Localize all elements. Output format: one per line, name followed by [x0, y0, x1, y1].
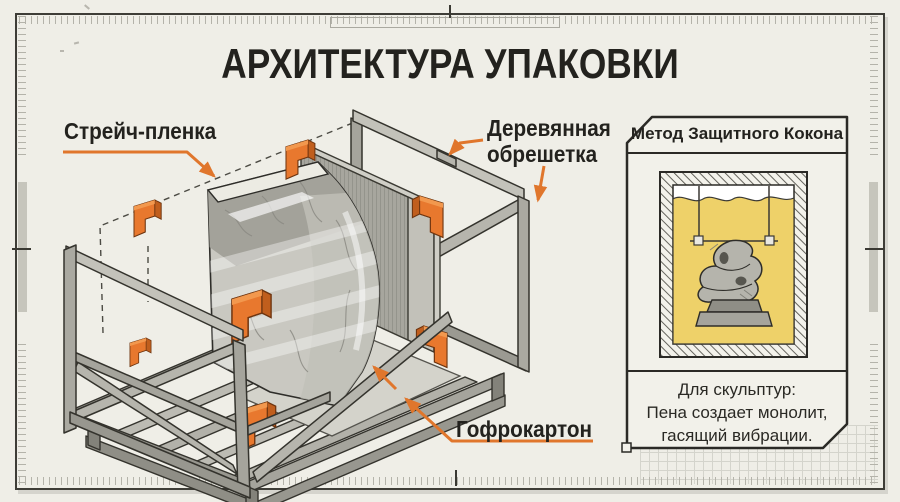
infographic-canvas: АРХИТЕКТУРА УПАКОВКИ Стрейч-пленка Дерев…: [0, 0, 900, 502]
label-stretch-film: Стрейч-пленка: [64, 118, 233, 144]
stretch-film-arrow: [63, 152, 214, 176]
label-wooden-crate: Деревянная обрешетка: [487, 115, 625, 167]
panel-body-line2: Пена создает монолит,: [629, 401, 845, 424]
cocoon-panel-header: Метод Защитного Кокона: [629, 124, 845, 144]
panel-body-line1: Для скульптур:: [629, 378, 845, 401]
panel-body-line3: гасящий вибрации.: [629, 424, 845, 447]
cocoon-panel-body: Для скульптур: Пена создает монолит, гас…: [629, 378, 845, 447]
crate-arrow-1: [450, 140, 483, 154]
label-cardboard: Гофрокартон: [456, 416, 607, 442]
cocoon-illustration: [660, 172, 807, 357]
label-wooden-crate-line1: Деревянная: [487, 115, 611, 141]
page-title: АРХИТЕКТУРА УПАКОВКИ: [72, 41, 828, 87]
crate-arrow-2: [538, 166, 544, 200]
label-wooden-crate-line2: обрешетка: [487, 141, 597, 167]
